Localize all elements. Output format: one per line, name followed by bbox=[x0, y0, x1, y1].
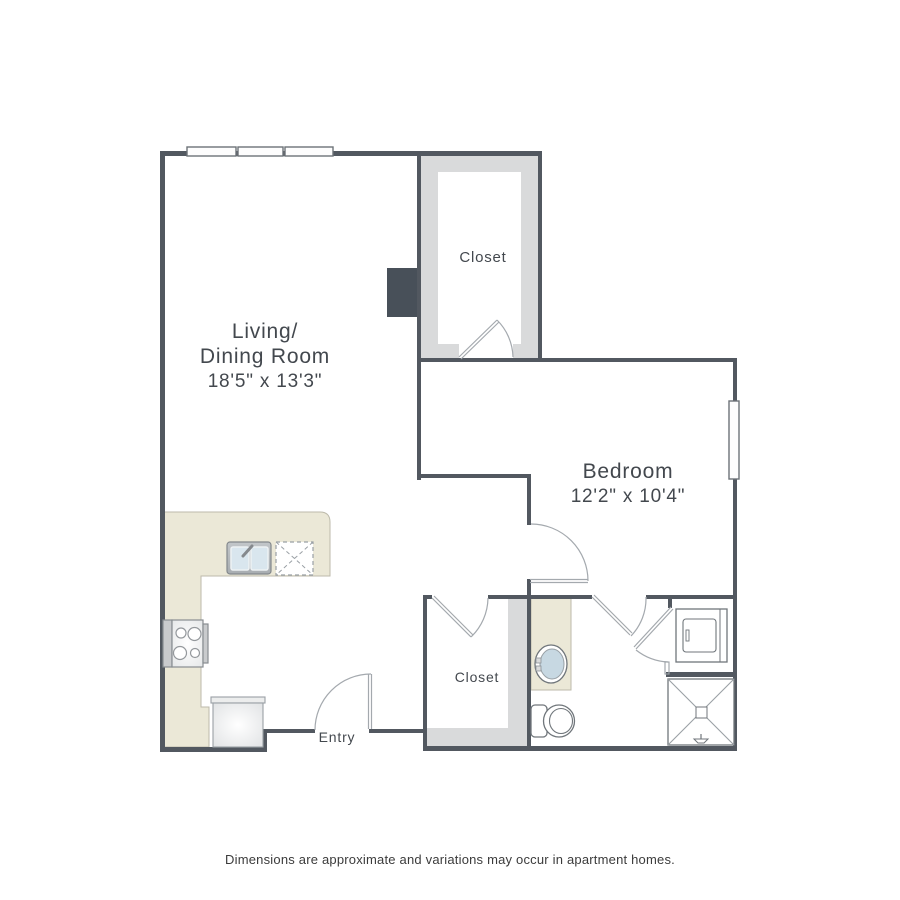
refrigerator bbox=[211, 697, 265, 747]
wall-bottom-right bbox=[423, 746, 737, 751]
wall-entry-closet-left bbox=[423, 595, 427, 751]
living-window-3 bbox=[285, 147, 333, 156]
bathroom-vanity-sink bbox=[535, 645, 567, 683]
faucet-icon bbox=[536, 658, 541, 663]
shower bbox=[668, 679, 734, 745]
entry-closet-door bbox=[432, 596, 488, 637]
living-room-label-line1: Living/ bbox=[232, 320, 298, 343]
range bbox=[163, 620, 208, 667]
burner-icon bbox=[174, 647, 187, 660]
entry-door bbox=[315, 674, 372, 730]
faucet-icon bbox=[536, 666, 541, 671]
bedroom-door bbox=[530, 524, 588, 583]
entry-closet-label: Closet bbox=[455, 669, 499, 685]
burner-icon bbox=[191, 649, 200, 658]
bedroom-label: Bedroom bbox=[583, 460, 674, 483]
living-room-dimensions: 18'5" x 13'3" bbox=[208, 371, 323, 392]
wall-closet-left bbox=[417, 151, 421, 480]
wall-entry-closet-top-left bbox=[423, 595, 432, 599]
wall-chase-column bbox=[387, 268, 417, 317]
dishwasher bbox=[276, 542, 313, 575]
bedroom-dimensions: 12'2" x 10'4" bbox=[571, 486, 686, 507]
wall-bottom-entry-left bbox=[263, 729, 315, 733]
burner-icon bbox=[176, 628, 186, 638]
wall-nook-bottom bbox=[666, 672, 737, 677]
wall-bath-north-left bbox=[527, 595, 592, 599]
floorplan-svg: Living/ Dining Room 18'5" x 13'3" Closet… bbox=[0, 0, 900, 900]
walk-in-closet-label: Closet bbox=[459, 249, 506, 266]
living-window-1 bbox=[187, 147, 236, 156]
wall-bedroom-top bbox=[538, 358, 737, 362]
floorplan-canvas: Living/ Dining Room 18'5" x 13'3" Closet… bbox=[0, 0, 900, 900]
wall-bedroom-left-upper bbox=[527, 474, 531, 525]
wall-bath-north-right bbox=[646, 595, 737, 599]
disclaimer-text: Dimensions are approximate and variation… bbox=[225, 852, 675, 867]
closet-wall-band-right bbox=[508, 599, 527, 728]
wall-bottom-kitchen bbox=[160, 747, 267, 752]
wall-entry-closet-top-right bbox=[488, 595, 531, 599]
bedroom-window bbox=[729, 401, 739, 479]
wall-nook-stub bbox=[668, 595, 672, 608]
living-window-2 bbox=[238, 147, 283, 156]
kitchen-sink bbox=[227, 542, 271, 574]
closet-door-gap bbox=[459, 344, 513, 360]
wall-closet-bottom-threshold bbox=[417, 358, 542, 362]
laundry-nook-door bbox=[634, 607, 673, 674]
burner-icon bbox=[188, 628, 201, 641]
toilet bbox=[531, 705, 575, 737]
washer-dryer bbox=[676, 609, 727, 662]
handle-icon bbox=[686, 630, 689, 641]
closet-wall-band-bottom bbox=[427, 728, 527, 747]
bathroom-door bbox=[592, 595, 646, 636]
wall-bottom-entry-right bbox=[369, 729, 427, 733]
living-room-label-line2: Dining Room bbox=[200, 345, 330, 368]
entry-label: Entry bbox=[319, 729, 356, 745]
wall-closet-right bbox=[538, 151, 542, 362]
wall-hall-stub bbox=[417, 474, 531, 478]
